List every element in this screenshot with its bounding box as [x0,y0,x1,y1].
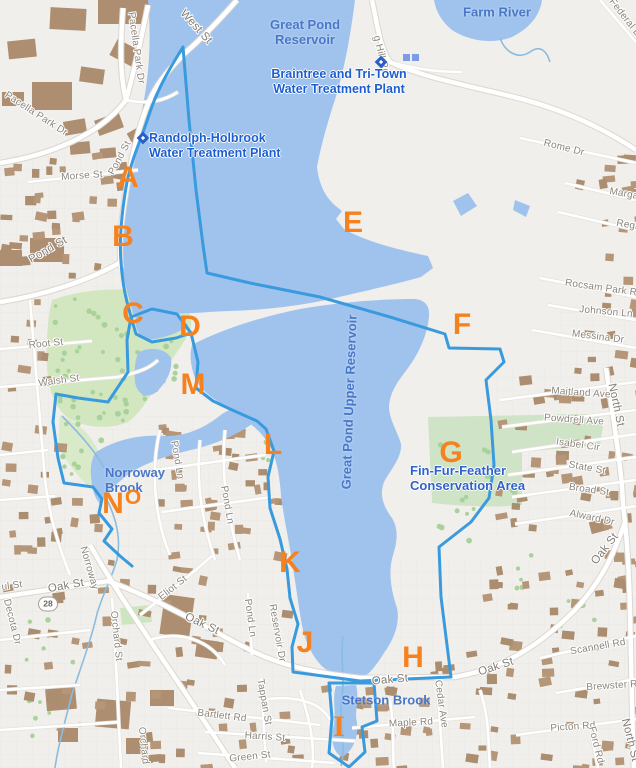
map-canvas[interactable]: 28 West StPacella Park DrPacella Park Dr… [0,0,636,768]
map-base-layers [0,0,636,768]
